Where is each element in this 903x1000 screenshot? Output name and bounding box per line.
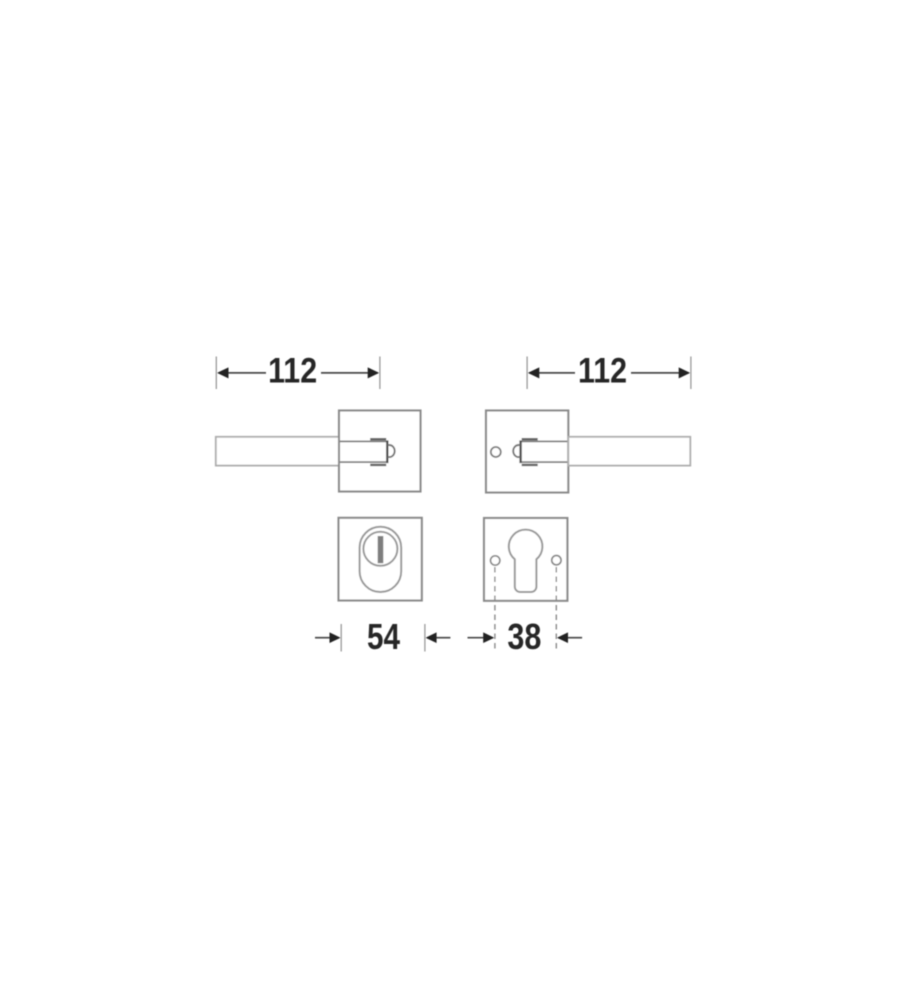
svg-text:112: 112 — [578, 352, 627, 391]
svg-text:54: 54 — [367, 616, 400, 657]
svg-text:112: 112 — [268, 352, 317, 391]
svg-text:38: 38 — [507, 616, 541, 657]
